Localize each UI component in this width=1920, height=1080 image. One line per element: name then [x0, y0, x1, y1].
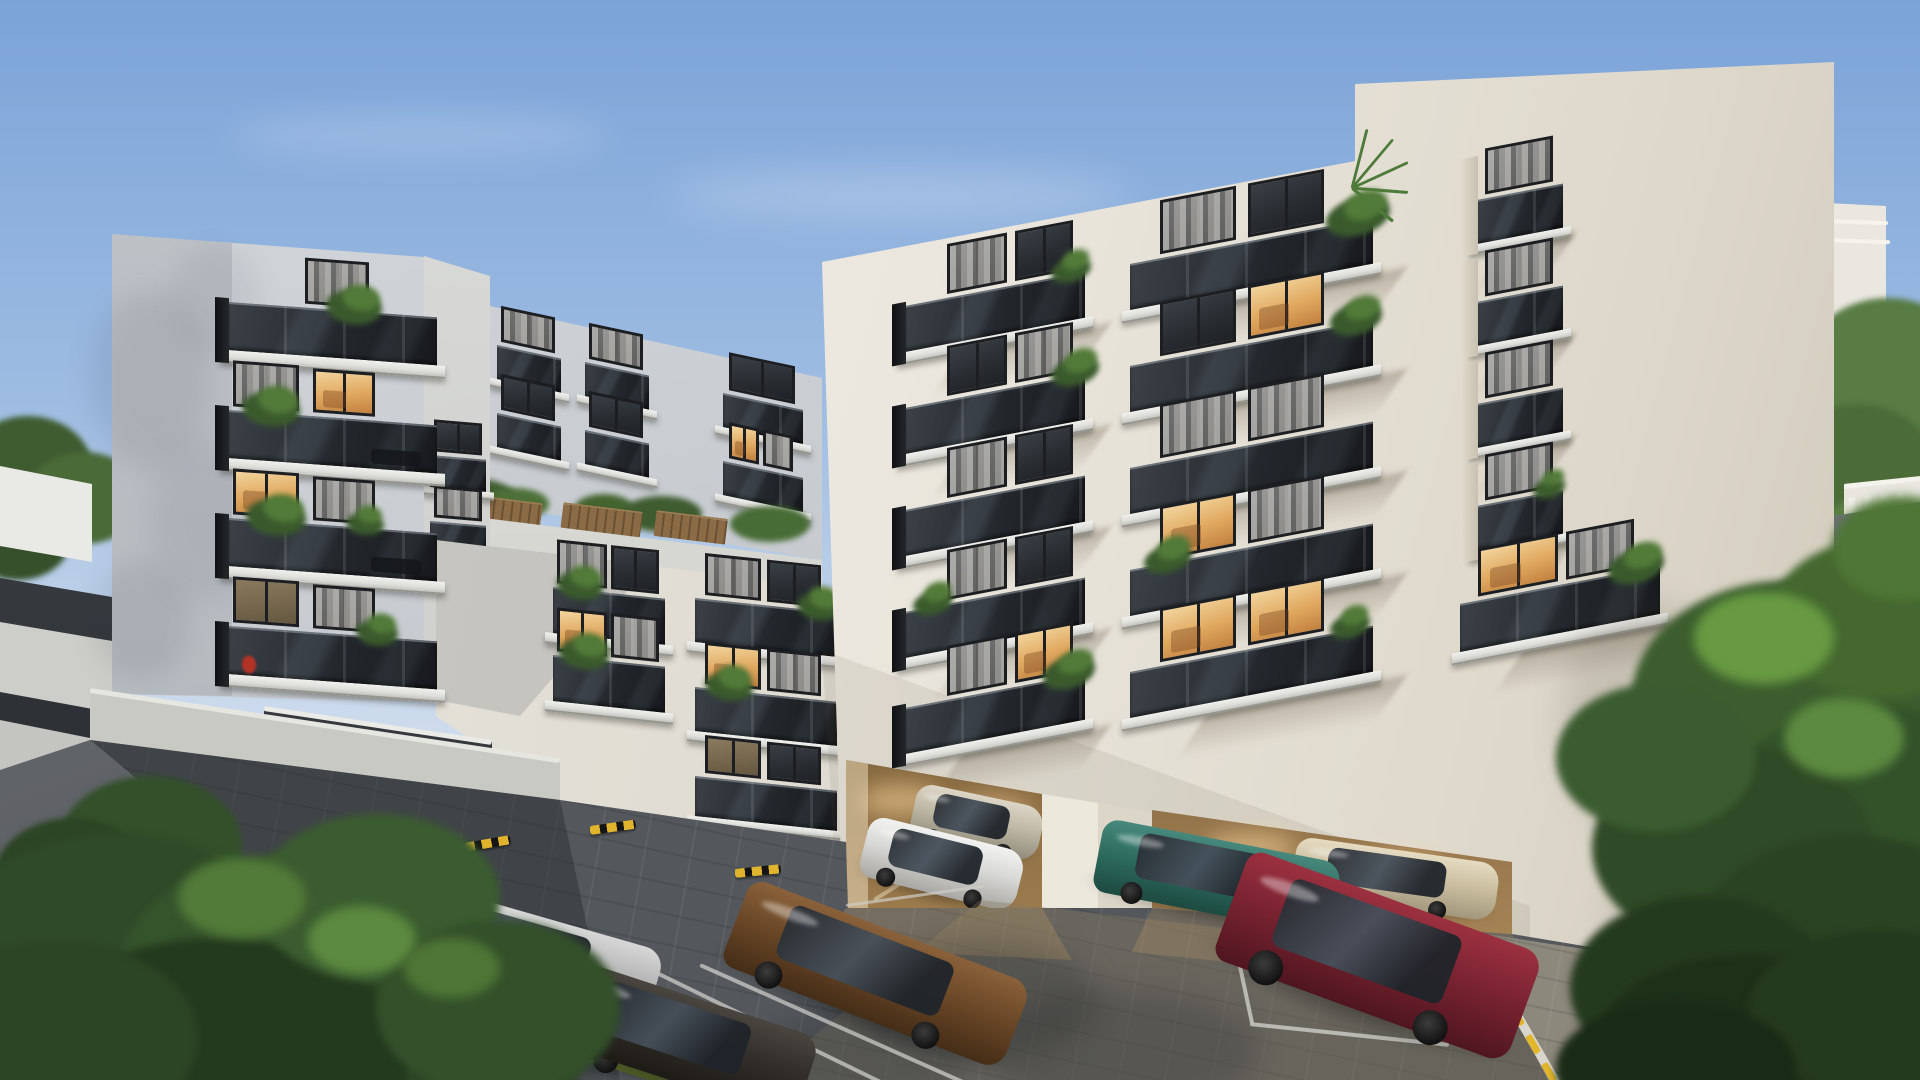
mid-balcony-window-dark [611, 545, 659, 594]
tree-shadow-dapple [90, 560, 190, 680]
mid-balcony [553, 655, 665, 724]
right-balcony-a4-side [892, 608, 906, 673]
right-balcony-a3-side [892, 506, 906, 571]
tree-highlight [404, 938, 500, 998]
mid-balcony-window-curtain [611, 613, 659, 662]
left-balcony-side [215, 513, 229, 579]
left-balcony-side [215, 297, 229, 363]
mid-balcony-window-curtain [767, 649, 821, 697]
left-balcony-window-lit [313, 368, 375, 417]
tree-right-big [1556, 684, 1756, 832]
left-balcony-side [215, 621, 229, 687]
tree-highlight [1784, 698, 1904, 778]
mid-balcony-window-dark [767, 742, 821, 786]
terrace-bush [730, 506, 810, 542]
wing-balcony-window-lit [729, 422, 759, 464]
mid-balcony-window-dim [705, 735, 761, 779]
left-balcony-window-dim [233, 576, 299, 627]
tree-highlight [308, 906, 416, 974]
right-balcony-d3-side [1460, 360, 1478, 461]
tree-highlight [178, 858, 306, 938]
mid-balcony-window-curtain [705, 553, 761, 601]
cloud [230, 113, 610, 157]
wing-balcony-window-curtain [763, 430, 793, 472]
apartment-complex-render [0, 0, 1920, 1080]
return-balcony-window-curtain [434, 485, 482, 521]
tree-highlight [1694, 592, 1834, 684]
cloud [670, 169, 1130, 221]
right-balcony-a2-side [892, 404, 906, 469]
return-balcony-window-dark [434, 419, 482, 455]
right-balcony-d4-side [1460, 462, 1478, 563]
left-balcony-red-object [242, 655, 256, 674]
right-balcony-d1-side [1460, 156, 1478, 257]
right-balcony-a1-side [892, 302, 906, 367]
left-balcony-side [215, 405, 229, 471]
right-balcony-d2-side [1460, 258, 1478, 359]
right-balcony-a5-side [892, 704, 906, 769]
right-balcony-b5 [1130, 626, 1373, 730]
